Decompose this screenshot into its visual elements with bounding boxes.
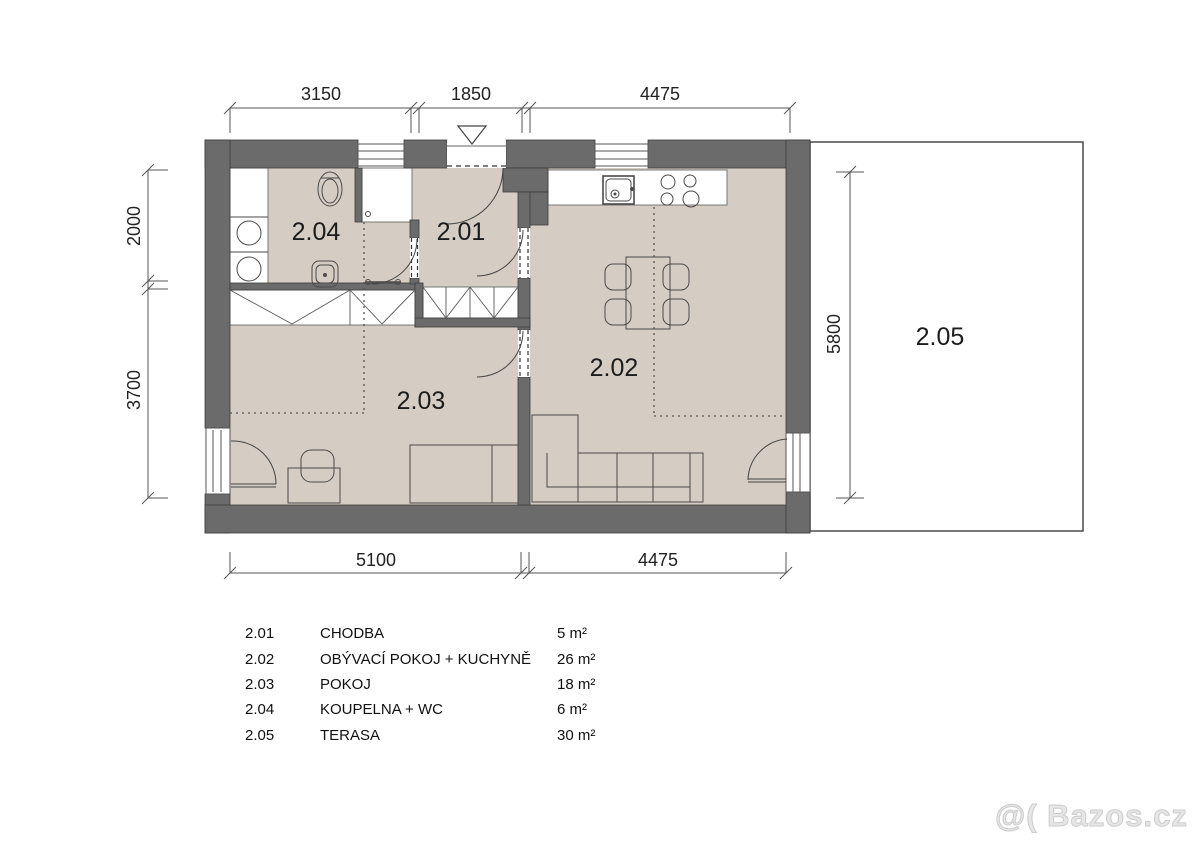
dim-top-1: 3150 (301, 84, 341, 104)
dim-top-3: 4475 (640, 84, 680, 104)
legend-name: CHODBA (320, 625, 557, 642)
legend-number: 2.03 (245, 676, 320, 693)
room-label-living: 2.02 (590, 354, 639, 382)
kitchen-counter (548, 170, 727, 205)
room-label-room: 2.03 (397, 387, 446, 415)
room-label-terrace: 2.05 (916, 323, 965, 351)
legend-row: 2.04 KOUPELNA + WC 6 m² (245, 697, 637, 722)
legend-row: 2.01 CHODBA 5 m² (245, 621, 637, 646)
legend-number: 2.02 (245, 651, 320, 668)
room-label-bathroom: 2.04 (292, 218, 341, 246)
legend-area: 6 m² (557, 701, 637, 718)
dim-right-1: 5800 (824, 314, 844, 354)
window-top-2 (595, 144, 648, 166)
bath-cabinet-column (230, 168, 268, 287)
floorplan-page: { "rooms": [ {"number":"2.01","name":"CH… (0, 0, 1200, 849)
living-floor (530, 168, 786, 505)
legend-row: 2.05 TERASA 30 m² (245, 723, 637, 748)
window-top-1 (358, 144, 404, 166)
legend-name: TERASA (320, 727, 557, 744)
dim-left-2: 3700 (124, 370, 144, 410)
bedroom-floor (230, 325, 518, 505)
room-label-hallway: 2.01 (437, 218, 486, 246)
shower (362, 168, 412, 222)
legend-name: KOUPELNA + WC (320, 701, 557, 718)
bazos-watermark: @( Bazos.cz (995, 798, 1188, 834)
dim-bottom-1: 5100 (356, 550, 396, 570)
legend-number: 2.01 (245, 625, 320, 642)
legend-area: 26 m² (557, 651, 637, 668)
dim-bottom-2: 4475 (638, 550, 678, 570)
legend-name: OBÝVACÍ POKOJ + KUCHYNĚ (320, 651, 557, 668)
legend-number: 2.04 (245, 701, 320, 718)
legend-name: POKOJ (320, 676, 557, 693)
legend-area: 30 m² (557, 727, 637, 744)
dim-left-1: 2000 (124, 206, 144, 246)
legend-table: 2.01 CHODBA 5 m² 2.02 OBÝVACÍ POKOJ + KU… (245, 621, 637, 748)
legend-area: 5 m² (557, 625, 637, 642)
legend-number: 2.05 (245, 727, 320, 744)
dim-top-2: 1850 (451, 84, 491, 104)
wardrobe-left (230, 290, 415, 325)
terrace-door-frame (786, 433, 810, 492)
legend-row: 2.03 POKOJ 18 m² (245, 672, 637, 697)
legend-row: 2.02 OBÝVACÍ POKOJ + KUCHYNĚ 26 m² (245, 646, 637, 671)
legend-area: 18 m² (557, 676, 637, 693)
wardrobe-hall (423, 287, 518, 318)
window-left (206, 428, 230, 494)
